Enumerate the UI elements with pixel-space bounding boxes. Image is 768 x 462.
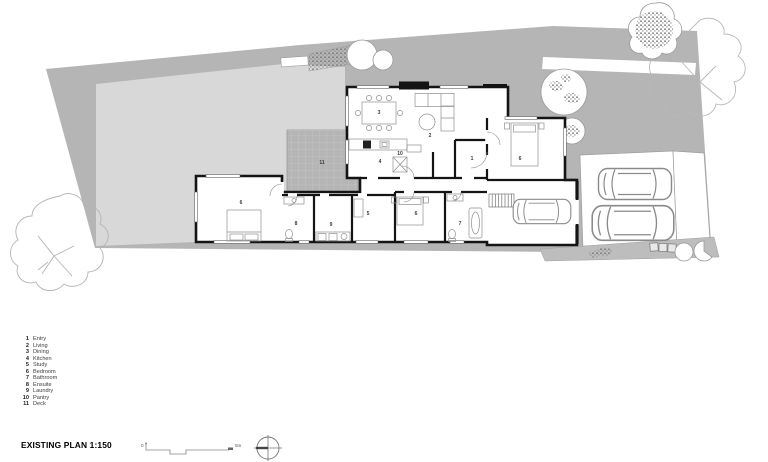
stairs	[489, 194, 514, 207]
room-marker-bedroom: 6	[415, 211, 418, 217]
plan-title: EXISTING PLAN 1:150	[21, 440, 112, 450]
scale-zero-label: 0	[141, 443, 144, 448]
legend-item-label: Deck	[33, 401, 46, 408]
room-marker-deck: 11	[319, 160, 325, 166]
room-marker-ensuite: 8	[295, 221, 298, 227]
legend-item: 11Deck	[21, 401, 57, 408]
car-top-view	[592, 206, 674, 241]
room-marker-bedroom: 6	[240, 200, 243, 206]
room-marker-kitchen: 4	[379, 159, 382, 165]
tree-canopy-top-right	[628, 3, 681, 59]
legend-list: 1Entry2Living3Dining4Kitchen5Study6Bedro…	[21, 336, 57, 408]
room-marker-bathroom: 7	[459, 221, 462, 227]
fireplace	[399, 82, 429, 90]
car-top-view	[513, 199, 571, 223]
room-marker-laundry: 9	[330, 222, 333, 228]
room-marker-dining: 3	[378, 110, 381, 116]
bins	[650, 243, 676, 252]
room-marker-bedroom: 6	[519, 156, 522, 162]
room-legend: 1Entry2Living3Dining4Kitchen5Study6Bedro…	[21, 336, 57, 408]
garden-edge	[281, 56, 309, 67]
tree-canopy	[373, 50, 393, 70]
room-marker-living: 2	[429, 133, 432, 139]
car-top-view	[599, 169, 672, 200]
site-plan-drawing: 1 2 3 4 5 6 6 6 7 8 9 10 11 0 5m	[0, 0, 768, 462]
shrub-patch	[589, 251, 599, 258]
floor-plan-sheet: 1 2 3 4 5 6 6 6 7 8 9 10 11 0 5m 1Entry2…	[0, 0, 768, 462]
scale-bar: 0 5m	[141, 443, 242, 455]
legend-item-number: 11	[21, 401, 29, 408]
street-tree	[675, 243, 693, 261]
room-marker-study: 5	[367, 211, 370, 217]
tree-canopy	[347, 40, 377, 70]
room-marker-pantry: 10	[397, 151, 403, 157]
north-arrow-icon	[254, 435, 282, 461]
room-marker-entry: 1	[471, 156, 474, 162]
scale-max-label: 5m	[235, 443, 242, 448]
